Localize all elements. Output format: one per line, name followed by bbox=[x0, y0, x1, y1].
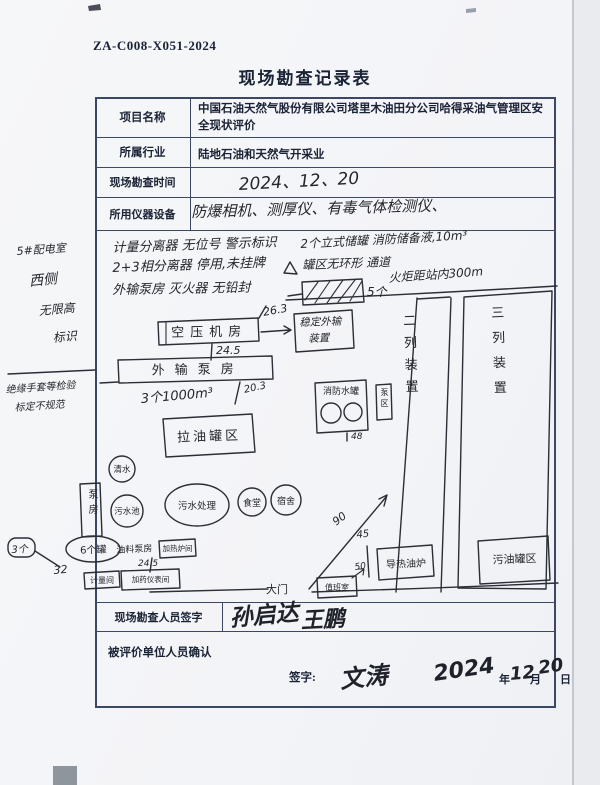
label-project-name: 项目名称 bbox=[95, 97, 190, 137]
margin-underline bbox=[8, 370, 95, 374]
hw-boiler-label: 导热油炉 bbox=[379, 548, 433, 576]
table-border-right bbox=[554, 97, 556, 707]
hw-pump-house-label: 外输泵房 bbox=[125, 356, 270, 380]
hw-note-6: 火炬距站内300m bbox=[388, 262, 484, 286]
hw-heater-room-label: 加热炉间 bbox=[160, 541, 195, 556]
hw-date-day: 20 bbox=[537, 655, 565, 679]
hw-small-box-label: 泵区 bbox=[379, 388, 390, 410]
hw-margin-note-3: 无限高 bbox=[38, 299, 75, 319]
hw-date-month: 12 bbox=[509, 662, 536, 685]
label-confirm: 被评价单位人员确认 bbox=[108, 644, 212, 660]
heater-hatched-box bbox=[302, 279, 364, 305]
scanned-survey-form: ZA-C008-X051-2024 现场勘查记录表 项目名称 所属行业 现场勘查… bbox=[0, 0, 600, 785]
dim-tick-45 bbox=[367, 546, 369, 577]
train2-right-line bbox=[441, 298, 451, 592]
hw-margin-note-1: 5#配电室 bbox=[16, 240, 66, 259]
label-sign: 签字: bbox=[289, 669, 316, 685]
hw-dist-24: 24.5 bbox=[216, 344, 241, 357]
label-surveyor-signature: 现场勘查人员签字 bbox=[95, 602, 222, 631]
table-signature-column-divider bbox=[222, 602, 223, 631]
hw-note-5: 罐区无环形 通道 bbox=[302, 253, 390, 273]
hw-waste-tank-label: 污油罐区 bbox=[480, 542, 549, 576]
page-title: 现场勘查记录表 bbox=[150, 64, 460, 89]
table-border-bottom bbox=[95, 706, 556, 708]
hw-dist-45: 45 bbox=[356, 529, 370, 541]
label-year: 年 bbox=[499, 671, 510, 687]
hw-margin-note-6: 标定不规范 bbox=[14, 396, 65, 414]
hw-dist-90: 90 bbox=[330, 509, 349, 528]
label-industry: 所属行业 bbox=[95, 137, 190, 167]
hw-oil-pump-label: 油料泵房 bbox=[116, 541, 153, 556]
connector-stroke bbox=[288, 294, 302, 296]
hw-margin-note-2: 西侧 bbox=[28, 268, 58, 291]
hw-circle-label-canteen: 食堂 bbox=[240, 495, 264, 509]
notes-underline bbox=[286, 286, 557, 300]
hw-note-3: 外输泵房 灭火器 无铅封 bbox=[112, 277, 251, 298]
value-industry: 陆地石油和天然气开采业 bbox=[198, 146, 325, 162]
arrow-90 bbox=[309, 495, 387, 589]
hw-oil-tank-area-label: 拉油罐区 bbox=[166, 417, 252, 452]
hw-train3-label: 三列装置 bbox=[486, 305, 508, 406]
hw-train2-label: 二列装置 bbox=[398, 313, 420, 402]
hw-dist-20: 20.3 bbox=[243, 380, 267, 395]
scan-edge-line bbox=[572, 0, 574, 785]
label-instruments: 所用仪器设备 bbox=[95, 197, 190, 230]
hw-dist-26: 26.3 bbox=[262, 302, 288, 319]
doc-number: ZA-C008-X051-2024 bbox=[93, 38, 216, 54]
hw-meter-room-label: 计量间 bbox=[85, 573, 119, 587]
hw-instruments: 防爆相机、测厚仪、有毒气体检测仪、 bbox=[191, 194, 446, 222]
hw-date-year: 2024 bbox=[432, 653, 496, 686]
hw-oval6-label: 6个罐 bbox=[68, 539, 119, 557]
hw-target-label-1: 稳定外输 bbox=[299, 314, 341, 330]
hw-margin-num: 32 bbox=[53, 563, 68, 577]
hw-survey-date: 2024、12、20 bbox=[238, 164, 360, 195]
hw-margin-count: 3个 bbox=[11, 540, 28, 556]
hw-dist-48: 48 bbox=[351, 432, 362, 442]
hw-tanks-label: 3个1000m³ bbox=[140, 382, 214, 407]
triangle-mark bbox=[284, 262, 297, 274]
hw-circle-label-sewage-pond: 污水池 bbox=[112, 504, 142, 518]
surveyor-signature-2: 王鹏 bbox=[300, 601, 346, 635]
scan-mark-top-right bbox=[466, 8, 476, 13]
fire-tank-circle-2 bbox=[344, 403, 362, 421]
scan-edge-strip bbox=[574, 0, 600, 785]
hw-margin-note-4: 标识 bbox=[52, 327, 77, 346]
hw-dist-245b: 24.5 bbox=[138, 559, 158, 569]
hw-note-2: 2+3相分离器 停用,未挂牌 bbox=[112, 252, 265, 276]
hw-circle-label-dormitory: 宿舍 bbox=[274, 493, 298, 507]
hw-margin-note-5: 绝缘手套等检验 bbox=[5, 376, 76, 396]
dim-tick-20 bbox=[235, 382, 240, 404]
hw-guard-label: 值班室 bbox=[318, 580, 356, 594]
scan-mark-top-left bbox=[88, 4, 101, 11]
hatch-strokes bbox=[305, 280, 362, 303]
value-project-name: 中国石油天然气股份有限公司塔里木油田分公司哈得采油气管理区安全现状评价 bbox=[198, 101, 550, 134]
scan-mark-bottom-left bbox=[53, 766, 77, 785]
fence-line-left bbox=[150, 589, 268, 592]
arrow-right bbox=[261, 326, 291, 334]
hw-dist-50: 50 bbox=[354, 561, 367, 572]
surveyor-signature-1: 孙启达 bbox=[228, 593, 300, 633]
hw-dosing-room-label: 加药仪表间 bbox=[122, 571, 179, 587]
label-survey-time: 现场勘查时间 bbox=[95, 167, 190, 197]
hw-oval-label-sewage-treatment: 污水处理 bbox=[172, 498, 222, 512]
fire-tank-circle-1 bbox=[321, 403, 341, 423]
pump-house-ext-line bbox=[100, 382, 118, 383]
hw-circle-label-clean-water: 清水 bbox=[109, 462, 135, 476]
hw-fire-tank-label: 消防水罐 bbox=[317, 384, 365, 397]
hw-pump-room-label: 泵房 bbox=[84, 489, 99, 519]
hw-target-label-2: 装置 bbox=[308, 330, 330, 346]
confirm-signature: 文涛 bbox=[338, 655, 389, 695]
hw-air-comp-label: 空压机房 bbox=[160, 319, 258, 342]
hw-heater-count: 5个 bbox=[367, 283, 387, 300]
train2-top bbox=[417, 297, 450, 299]
table-row-divider-4 bbox=[95, 230, 556, 231]
